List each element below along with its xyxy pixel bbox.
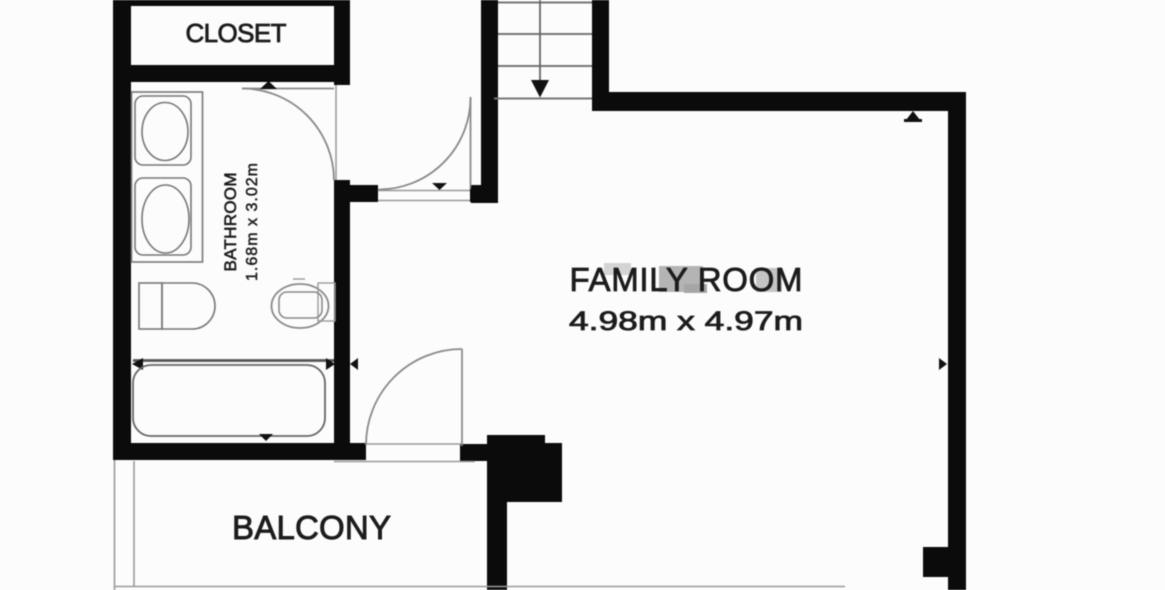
svg-text:4.98m x 4.97m: 4.98m x 4.97m (569, 306, 803, 336)
svg-text:CLOSET: CLOSET (186, 18, 287, 48)
svg-text:BALCONY: BALCONY (232, 509, 391, 546)
svg-text:FAMILY ROOM: FAMILY ROOM (570, 261, 803, 298)
svg-text:1.68m x 3.02m: 1.68m x 3.02m (244, 163, 261, 281)
svg-text:BATHROOM: BATHROOM (221, 173, 240, 272)
